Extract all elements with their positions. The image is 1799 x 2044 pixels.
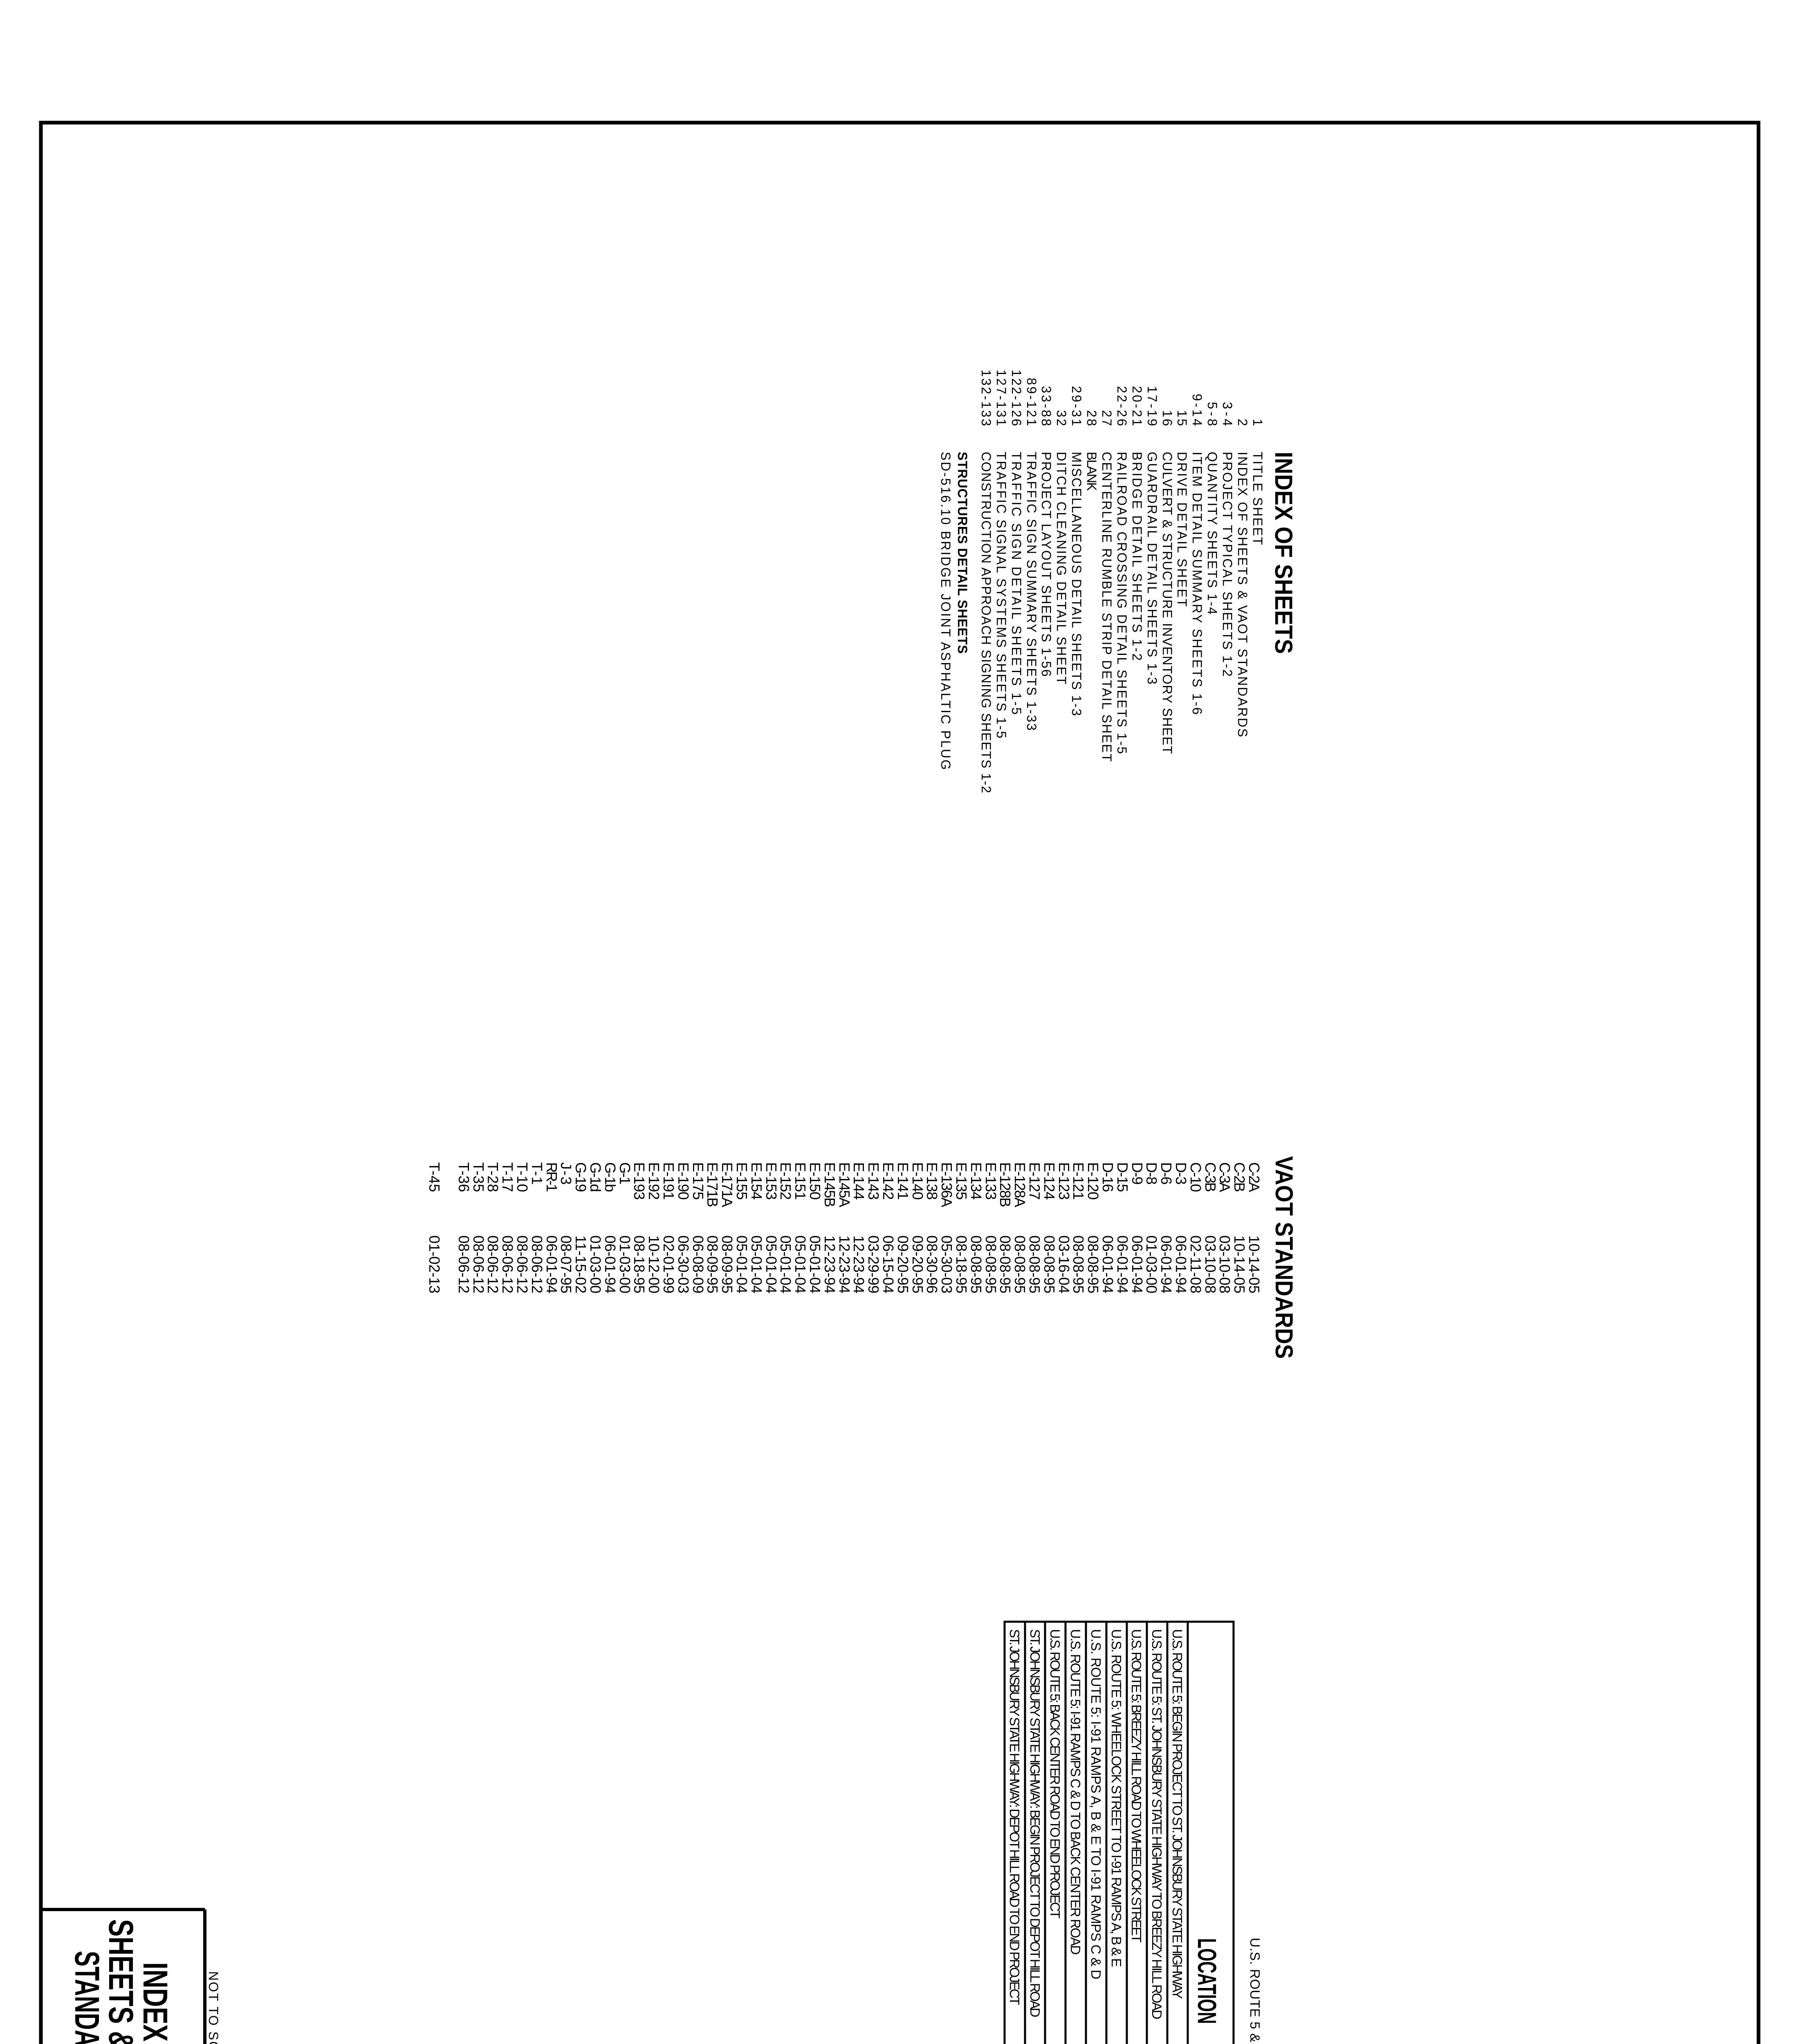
svg-text:08-06-12: 08-06-12 [455, 1235, 472, 1293]
svg-text:08-08-95: 08-08-95 [968, 1235, 985, 1293]
svg-text:9-14: 9-14 [1190, 394, 1205, 426]
svg-text:PROJECT LAYOUT SHEETS 1-56: PROJECT LAYOUT SHEETS 1-56 [1039, 452, 1054, 677]
svg-text:TRAFFIC SIGNAL SYSTEMS SHEETS: TRAFFIC SIGNAL SYSTEMS SHEETS 1-5 [994, 452, 1009, 738]
svg-text:10-14-05: 10-14-05 [1246, 1235, 1263, 1293]
svg-text:12-23-94: 12-23-94 [821, 1235, 838, 1293]
svg-text:INDEX OF SHEETS & VAOT STANDAR: INDEX OF SHEETS & VAOT STANDARDS [1235, 452, 1250, 737]
svg-text:VAOT STANDARDS: VAOT STANDARDS [1270, 1156, 1297, 1359]
svg-text:INDEX OF SHEETS: INDEX OF SHEETS [1270, 452, 1297, 654]
svg-text:BLANK: BLANK [1084, 452, 1099, 491]
svg-text:E-123: E-123 [1056, 1162, 1072, 1200]
svg-text:02-11-08: 02-11-08 [1187, 1235, 1204, 1293]
svg-text:E-124: E-124 [1041, 1162, 1058, 1200]
svg-text:E-190: E-190 [675, 1162, 692, 1200]
svg-text:05-01-04: 05-01-04 [763, 1235, 780, 1293]
svg-text:T-36: T-36 [455, 1162, 472, 1192]
svg-text:5-8: 5-8 [1205, 402, 1220, 426]
svg-text:G-1b: G-1b [602, 1162, 619, 1192]
svg-text:D-16: D-16 [1099, 1162, 1116, 1192]
svg-text:05-01-04: 05-01-04 [807, 1235, 823, 1293]
svg-text:G-1: G-1 [617, 1162, 633, 1185]
svg-text:NOT TO SCALE: NOT TO SCALE [206, 1971, 221, 2044]
svg-text:10-14-05: 10-14-05 [1231, 1235, 1248, 1293]
svg-text:09-20-95: 09-20-95 [895, 1235, 911, 1293]
svg-text:T-1: T-1 [529, 1162, 545, 1185]
svg-text:E-155: E-155 [734, 1162, 750, 1200]
svg-text:E-128A: E-128A [1012, 1162, 1028, 1207]
svg-text:E-140: E-140 [909, 1162, 926, 1200]
svg-text:D-9: D-9 [1129, 1162, 1146, 1185]
svg-text:06-01-94: 06-01-94 [1158, 1235, 1175, 1293]
svg-text:08-06-12: 08-06-12 [499, 1235, 516, 1293]
svg-text:122-126: 122-126 [1009, 370, 1024, 426]
svg-text:SD-516.10 BRIDGE JOINT ASPHALT: SD-516.10 BRIDGE JOINT ASPHALTIC PLUG [938, 452, 953, 770]
svg-text:08-08-95: 08-08-95 [1041, 1235, 1058, 1293]
svg-text:08-06-12: 08-06-12 [514, 1235, 531, 1293]
svg-text:CULVERT & STRUCTURE INVENTORY: CULVERT & STRUCTURE INVENTORY SHEET [1160, 452, 1175, 754]
svg-text:20-21: 20-21 [1130, 386, 1144, 426]
svg-text:28: 28 [1084, 410, 1099, 426]
svg-text:MISCELLANEOUS DETAIL SHEETS 1-: MISCELLANEOUS DETAIL SHEETS 1-3 [1069, 452, 1084, 716]
svg-text:U.S. ROUTE 5: BACK CENTER ROAD: U.S. ROUTE 5: BACK CENTER ROAD TO END PR… [1048, 1629, 1063, 1918]
svg-text:06-30-03: 06-30-03 [675, 1235, 692, 1293]
svg-text:08-18-95: 08-18-95 [953, 1235, 970, 1293]
svg-text:BRIDGE DETAIL SHEETS 1-2: BRIDGE DETAIL SHEETS 1-2 [1130, 452, 1144, 661]
svg-text:06-01-94: 06-01-94 [1129, 1235, 1146, 1293]
svg-text:E-133: E-133 [982, 1162, 999, 1200]
svg-text:LOCATION: LOCATION [1192, 1938, 1222, 2024]
svg-text:DITCH CLEANING DETAIL SHEET: DITCH CLEANING DETAIL SHEET [1054, 452, 1069, 684]
svg-text:89-121: 89-121 [1024, 378, 1039, 426]
svg-text:RR-1: RR-1 [543, 1162, 560, 1192]
svg-text:03-16-04: 03-16-04 [1056, 1235, 1072, 1293]
svg-text:03-10-08: 03-10-08 [1202, 1235, 1219, 1293]
svg-text:ST. JOHNSBURY STATE HIGHWAY: D: ST. JOHNSBURY STATE HIGHWAY: DEPOT HILL … [1007, 1629, 1022, 2005]
svg-text:10-12-00: 10-12-00 [646, 1235, 662, 1293]
svg-text:E-154: E-154 [748, 1162, 765, 1200]
svg-text:3-4: 3-4 [1220, 402, 1235, 426]
svg-text:15: 15 [1175, 410, 1189, 426]
svg-text:06-01-94: 06-01-94 [1114, 1235, 1131, 1293]
svg-text:29-31: 29-31 [1069, 386, 1084, 426]
svg-text:06-01-94: 06-01-94 [602, 1235, 619, 1293]
svg-text:06-01-94: 06-01-94 [1099, 1235, 1116, 1293]
svg-text:T-10: T-10 [514, 1162, 531, 1192]
svg-text:03-29-99: 03-29-99 [865, 1235, 882, 1293]
svg-text:132-133: 132-133 [979, 370, 994, 426]
svg-text:C-3B: C-3B [1202, 1162, 1219, 1192]
svg-text:22-26: 22-26 [1115, 386, 1129, 426]
svg-text:D-3: D-3 [1173, 1162, 1189, 1185]
svg-text:INDEX OF: INDEX OF [136, 1962, 175, 2044]
svg-text:QUANTITY SHEETS 1-4: QUANTITY SHEETS 1-4 [1205, 452, 1220, 614]
svg-text:E-127: E-127 [1026, 1162, 1043, 1200]
svg-text:E-145A: E-145A [836, 1162, 853, 1207]
svg-text:E-175: E-175 [690, 1162, 707, 1200]
svg-text:TRAFFIC SIGN DETAIL SHEETS 1-5: TRAFFIC SIGN DETAIL SHEETS 1-5 [1009, 452, 1024, 715]
svg-text:D-15: D-15 [1114, 1162, 1131, 1192]
svg-text:STRUCTURES DETAIL SHEETS: STRUCTURES DETAIL SHEETS [955, 452, 970, 654]
svg-text:08-08-95: 08-08-95 [1026, 1235, 1043, 1293]
svg-text:2: 2 [1235, 419, 1250, 426]
svg-text:PROJECT TYPICAL SHEETS 1-2: PROJECT TYPICAL SHEETS 1-2 [1220, 452, 1235, 677]
svg-text:11-15-02: 11-15-02 [572, 1235, 589, 1293]
svg-text:09-20-95: 09-20-95 [909, 1235, 926, 1293]
svg-text:E-120: E-120 [1085, 1162, 1101, 1200]
svg-text:U.S. ROUTE 5: WHEELOCK STREET: U.S. ROUTE 5: WHEELOCK STREET TO I-91 RA… [1109, 1629, 1124, 1967]
svg-text:05-30-03: 05-30-03 [938, 1235, 955, 1293]
svg-text:127-131: 127-131 [994, 370, 1009, 426]
svg-text:E-153: E-153 [763, 1162, 780, 1200]
svg-text:U.S. ROUTE 5: I-91 RAMPS C & D: U.S. ROUTE 5: I-91 RAMPS C & D TO BACK C… [1068, 1629, 1083, 1955]
svg-text:08-06-12: 08-06-12 [529, 1235, 545, 1293]
svg-text:E-150: E-150 [807, 1162, 823, 1200]
svg-text:G-19: G-19 [572, 1162, 589, 1192]
svg-text:E-192: E-192 [646, 1162, 662, 1200]
svg-text:ST. JOHNSBURY STATE HIGHWAY: B: ST. JOHNSBURY STATE HIGHWAY: BEGIN PROJE… [1027, 1629, 1043, 2017]
svg-text:C-2B: C-2B [1231, 1162, 1248, 1192]
svg-text:08-08-95: 08-08-95 [1012, 1235, 1028, 1293]
svg-text:01-03-00: 01-03-00 [617, 1235, 633, 1293]
svg-text:06-01-94: 06-01-94 [1173, 1235, 1189, 1293]
svg-text:C-10: C-10 [1187, 1162, 1204, 1192]
svg-text:E-141: E-141 [895, 1162, 911, 1200]
svg-text:U.S. ROUTE 5 & ST. JOHNSBURY S: U.S. ROUTE 5 & ST. JOHNSBURY STATE HIGHW… [1247, 1938, 1263, 2044]
svg-text:U.S. ROUTE 5: BREEZY HILL ROAD: U.S. ROUTE 5: BREEZY HILL ROAD TO WHEELO… [1129, 1629, 1144, 1943]
svg-text:T-35: T-35 [470, 1162, 487, 1192]
svg-text:01-02-13: 01-02-13 [426, 1235, 443, 1293]
svg-text:RAILROAD CROSSING DETAIL SHEET: RAILROAD CROSSING DETAIL SHEETS 1-5 [1115, 452, 1129, 754]
svg-text:02-01-99: 02-01-99 [660, 1235, 677, 1293]
svg-text:08-09-95: 08-09-95 [719, 1235, 736, 1293]
svg-text:05-01-04: 05-01-04 [748, 1235, 765, 1293]
svg-text:ITEM DETAIL SUMMARY SHEETS 1-6: ITEM DETAIL SUMMARY SHEETS 1-6 [1190, 452, 1205, 715]
svg-text:E-151: E-151 [792, 1162, 809, 1200]
svg-text:08-06-12: 08-06-12 [470, 1235, 487, 1293]
svg-text:12-23-94: 12-23-94 [836, 1235, 853, 1293]
svg-text:GUARDRAIL DETAIL SHEETS 1-3: GUARDRAIL DETAIL SHEETS 1-3 [1145, 452, 1160, 684]
svg-text:33-88: 33-88 [1039, 386, 1054, 426]
svg-text:TITLE SHEET: TITLE SHEET [1250, 452, 1265, 545]
svg-text:E-134: E-134 [968, 1162, 985, 1200]
svg-text:16: 16 [1160, 410, 1175, 426]
svg-text:32: 32 [1054, 410, 1069, 426]
svg-text:27: 27 [1099, 410, 1114, 426]
svg-text:U.S. ROUTE 5: BEGIN PROJECT TO: U.S. ROUTE 5: BEGIN PROJECT TO ST. JOHNS… [1170, 1629, 1185, 1999]
svg-text:SHEETS & VAOT: SHEETS & VAOT [102, 1919, 140, 2044]
svg-text:E-171A: E-171A [719, 1162, 736, 1207]
svg-text:U.S. ROUTE 5: I-91 RAMPS A, B: U.S. ROUTE 5: I-91 RAMPS A, B & E TO I-9… [1088, 1629, 1104, 1979]
svg-text:06-08-09: 06-08-09 [690, 1235, 707, 1293]
svg-text:01-03-00: 01-03-00 [587, 1235, 604, 1293]
svg-text:T-17: T-17 [499, 1162, 516, 1192]
svg-text:CONSTRUCTION APPROACH SIGNING: CONSTRUCTION APPROACH SIGNING SHEETS 1-2 [979, 452, 994, 793]
svg-text:05-01-04: 05-01-04 [734, 1235, 750, 1293]
svg-text:E-136A: E-136A [938, 1162, 955, 1207]
svg-text:1: 1 [1250, 419, 1265, 426]
svg-text:E-191: E-191 [660, 1162, 677, 1200]
svg-text:08-08-95: 08-08-95 [1085, 1235, 1101, 1293]
svg-text:06-01-94: 06-01-94 [543, 1235, 560, 1293]
svg-text:STANDARDS: STANDARDS [67, 1951, 105, 2044]
svg-text:05-01-04: 05-01-04 [792, 1235, 809, 1293]
svg-text:17-19: 17-19 [1145, 386, 1160, 426]
svg-text:C-2A: C-2A [1246, 1162, 1263, 1192]
svg-text:06-15-04: 06-15-04 [880, 1235, 897, 1293]
svg-text:E-143: E-143 [865, 1162, 882, 1200]
svg-text:08-08-95: 08-08-95 [982, 1235, 999, 1293]
svg-text:TRAFFIC SIGN SUMMARY SHEETS 1-: TRAFFIC SIGN SUMMARY SHEETS 1-33 [1024, 452, 1039, 731]
svg-text:E-135: E-135 [953, 1162, 970, 1200]
svg-text:U.S. ROUTE 5: ST. JOHNSBURY ST: U.S. ROUTE 5: ST. JOHNSBURY STATE HIGHWA… [1149, 1629, 1164, 2019]
svg-text:E-145B: E-145B [821, 1162, 838, 1207]
svg-text:E-142: E-142 [880, 1162, 897, 1200]
svg-text:DRIVE DETAIL SHEET: DRIVE DETAIL SHEET [1175, 452, 1189, 607]
svg-text:CENTERLINE RUMBLE STRIP DETAIL: CENTERLINE RUMBLE STRIP DETAIL SHEET [1099, 452, 1114, 762]
svg-text:G-1d: G-1d [587, 1162, 604, 1192]
svg-text:T-45: T-45 [426, 1162, 443, 1192]
svg-text:D-6: D-6 [1158, 1162, 1175, 1185]
